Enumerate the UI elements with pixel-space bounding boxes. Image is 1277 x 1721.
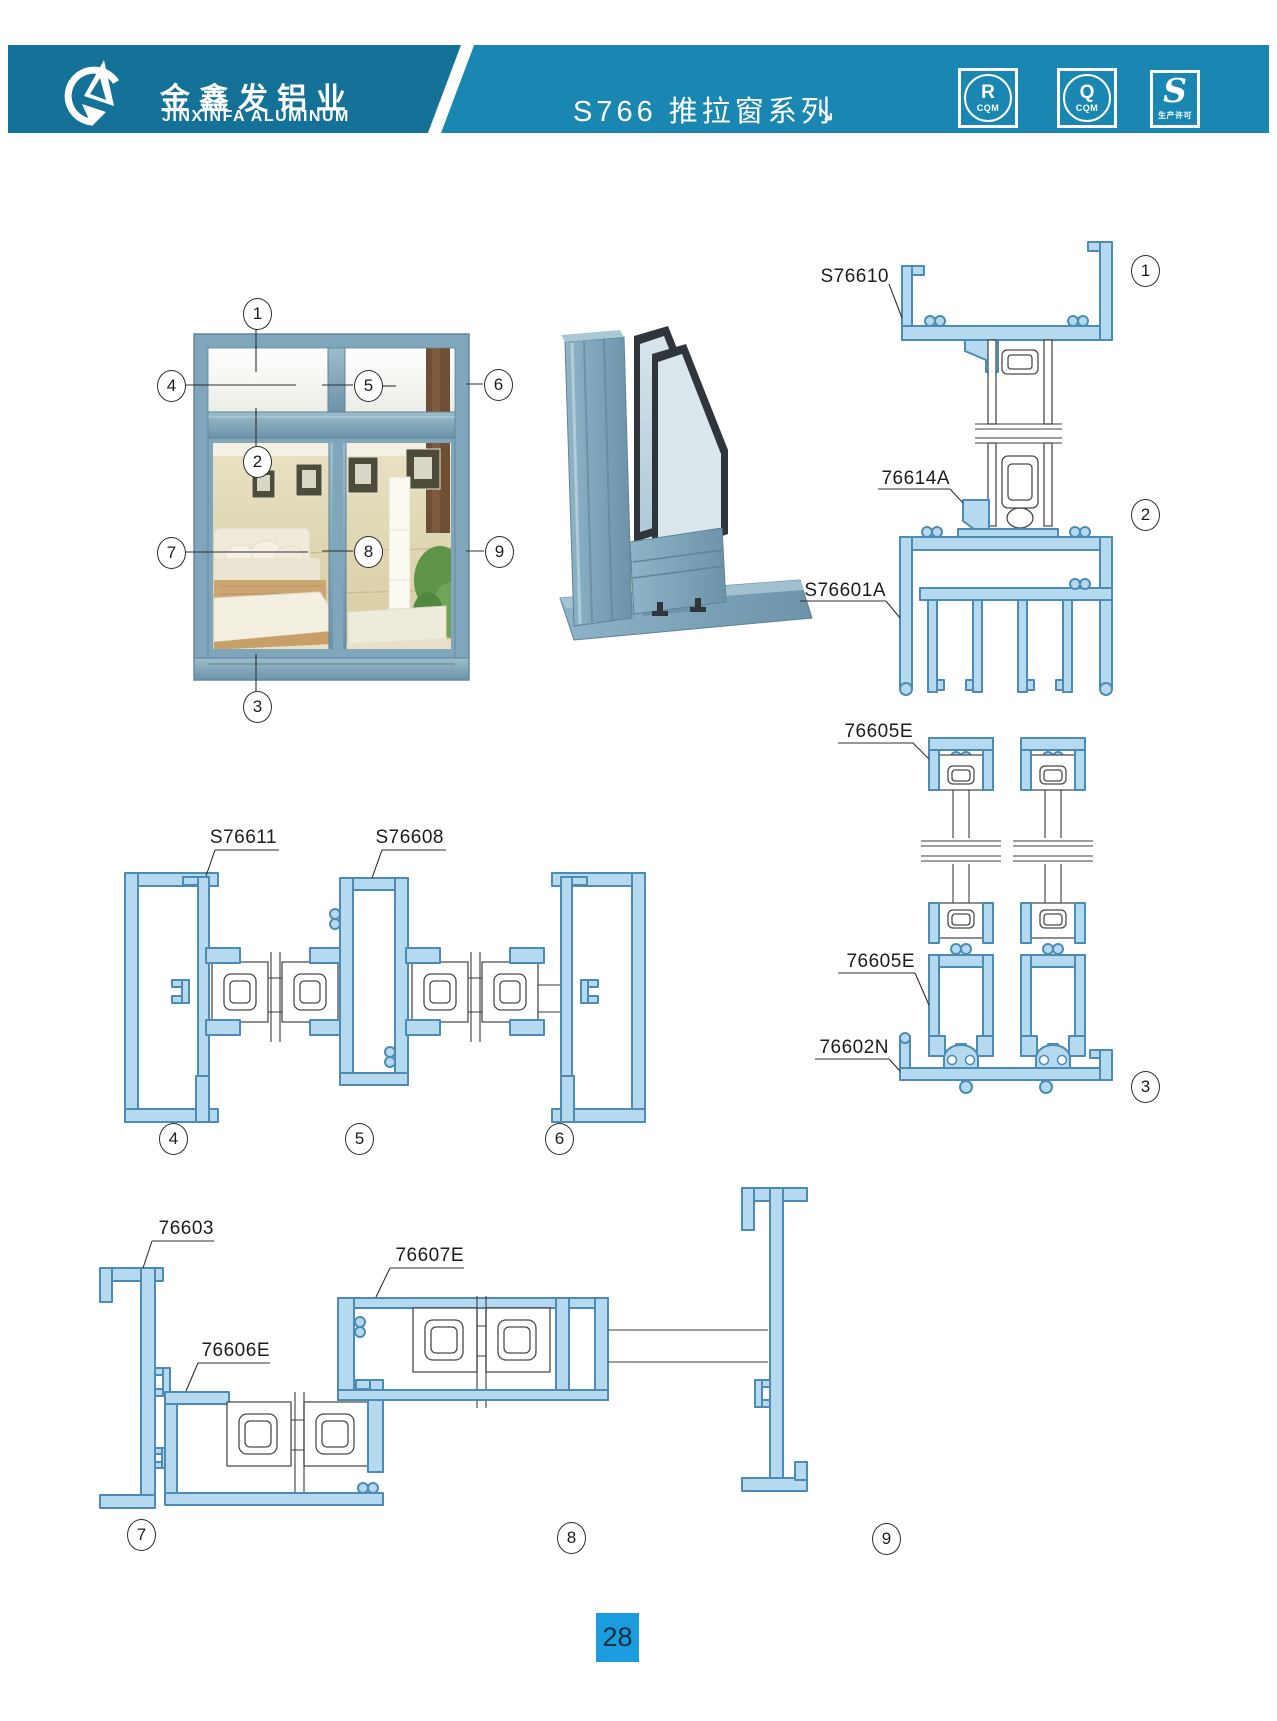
drawing-layer bbox=[0, 0, 1277, 1721]
cert-badge-qs: S 生产许可 bbox=[1150, 70, 1200, 128]
cert-badge-qs-caption: 生产许可 bbox=[1153, 110, 1197, 121]
label-s76608: S76608 bbox=[324, 827, 444, 849]
callout-section-6: 6 bbox=[545, 1123, 574, 1155]
mid-horizontal-section-drawing bbox=[125, 850, 645, 1122]
label-s76601a: S76601A bbox=[766, 580, 886, 602]
label-76607e: 76607E bbox=[344, 1245, 464, 1267]
cert-badge-q-letter: Q bbox=[1080, 83, 1095, 102]
sofa bbox=[214, 528, 326, 602]
callout-section-5: 5 bbox=[345, 1123, 374, 1155]
callout-window-9: 9 bbox=[485, 536, 514, 568]
company-logo-icon bbox=[62, 58, 124, 128]
company-name-en: JINXINFA ALUMINUM bbox=[162, 108, 350, 126]
callout-section-9: 9 bbox=[872, 1523, 901, 1555]
callout-section-7: 7 bbox=[127, 1519, 156, 1551]
label-76614a: 76614A bbox=[830, 468, 950, 490]
callout-section-4: 4 bbox=[159, 1123, 188, 1155]
callout-window-4: 4 bbox=[157, 370, 186, 402]
page-number-badge: 28 bbox=[596, 1613, 639, 1662]
callout-window-6: 6 bbox=[484, 369, 513, 401]
label-76605e-bottom: 76605E bbox=[795, 951, 915, 973]
series-title: S766 推拉窗系列 bbox=[573, 88, 834, 130]
callout-window-1: 1 bbox=[243, 298, 272, 330]
cert-badge-r: R CQM bbox=[958, 68, 1018, 128]
callout-window-5: 5 bbox=[354, 370, 383, 402]
label-76602n: 76602N bbox=[769, 1037, 889, 1059]
catalog-page: 金鑫发铝业 JINXINFA ALUMINUM S766 推拉窗系列 ↘ R C… bbox=[0, 0, 1277, 1721]
label-s76611: S76611 bbox=[157, 827, 277, 849]
cert-badge-r-caption: CQM bbox=[977, 104, 1000, 113]
cert-badge-r-letter: R bbox=[981, 83, 995, 102]
callout-window-2: 2 bbox=[243, 446, 272, 478]
callout-window-8: 8 bbox=[354, 536, 383, 568]
callout-window-3: 3 bbox=[243, 691, 272, 723]
header-band-right bbox=[441, 45, 1269, 133]
label-76605e-top: 76605E bbox=[793, 721, 913, 743]
callout-section-3: 3 bbox=[1131, 1071, 1160, 1103]
cert-badge-qs-letter: S bbox=[1153, 73, 1197, 109]
label-s76610: S76610 bbox=[769, 266, 889, 288]
callout-window-7: 7 bbox=[157, 537, 186, 569]
mid-section-leaders bbox=[206, 850, 446, 878]
callout-section-2: 2 bbox=[1131, 499, 1160, 531]
cert-badge-q-caption: CQM bbox=[1076, 104, 1099, 113]
label-76603: 76603 bbox=[94, 1218, 214, 1240]
label-76606e: 76606E bbox=[150, 1340, 270, 1362]
callout-section-8: 8 bbox=[557, 1522, 586, 1554]
window-photo bbox=[184, 328, 484, 691]
callout-section-1: 1 bbox=[1131, 255, 1160, 287]
cert-badge-q: Q CQM bbox=[1057, 68, 1117, 128]
series-arrow-icon: ↘ bbox=[815, 99, 835, 128]
